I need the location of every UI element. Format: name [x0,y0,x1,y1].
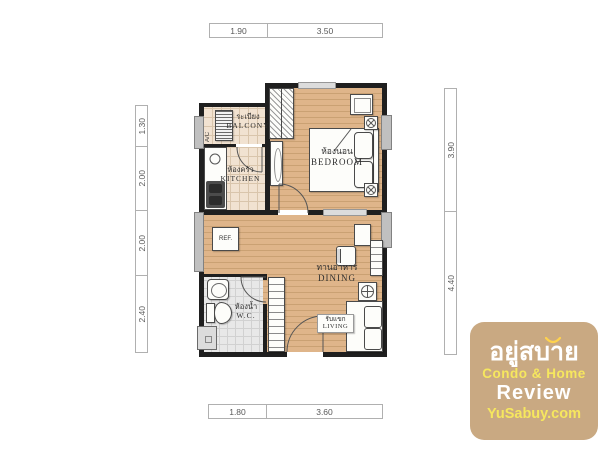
bedroom-console [270,141,283,186]
dim-right-1: 3.90 [444,88,457,212]
dim-top-2: 3.50 [267,23,383,38]
balcony-label: ระเบียง BALCONY [226,113,270,130]
nightstand [350,94,373,115]
window-left-dining [194,212,204,272]
yusabuy-logo-thai: อยู่สบาย [489,340,578,365]
smiley-icon [545,336,561,345]
wc-label: ห้องน้ำ W.C. [224,303,268,320]
bedroom-wardrobe [269,88,294,139]
refrigerator-label: REF. [219,236,232,242]
ac-label: A/C [205,114,211,142]
wall-balcony-top [199,103,269,107]
yusabuy-watermark: อยู่สบาย Condo & Home Review YuSabuy.com [470,322,598,440]
dim-bottom-1: 1.80 [208,404,267,419]
wall-bottom-left [199,352,287,357]
bedside-lamp-top [364,116,378,130]
dim-left-3: 2.00 [135,210,148,276]
watermark-line3: YuSabuy.com [487,406,581,422]
dim-left-2: 2.00 [135,146,148,211]
kitchen-label: ห้องครัว KITCHEN [216,166,265,183]
dim-left-4: 2.40 [135,275,148,353]
wall-middle-center [308,210,323,215]
hall-closet [268,277,285,352]
wall-bottom-right [323,352,387,357]
sofa-cushion-top [364,306,382,328]
sink-basin-top [209,184,222,193]
dim-top-1: 1.90 [209,23,268,38]
wc-basin [207,279,229,300]
watermark-line1: Condo & Home [482,366,586,381]
wall-shelf [370,240,383,276]
wall-balcony-kitchen-stub [262,144,270,147]
window-bedroom-top [298,82,336,89]
sofa-cushion-bottom [364,328,382,350]
window-left-balcony [194,116,204,149]
dim-bottom-2: 3.60 [266,404,383,419]
chair-back [337,249,341,263]
shower-area [197,326,217,350]
side-table [358,282,377,301]
shower-drain [205,336,212,343]
living-label: รับแขก LIVING [317,314,354,333]
window-bedroom-dining [323,209,367,216]
window-right-bedroom [381,115,392,150]
floorplan-canvas: A/C REF. [0,0,600,450]
dining-desk [354,224,371,246]
bedside-lamp-bottom [364,183,378,197]
kitchen-sink [206,181,225,208]
wall-middle-left [199,210,278,215]
dim-right-2: 4.40 [444,211,457,355]
sink-basin-bottom [209,196,222,205]
watermark-line2: Review [497,382,572,405]
bedroom-label: ห้องนอน BEDROOM [303,147,371,167]
bed-headboard-line [373,129,374,191]
console-detail [274,148,282,182]
wardrobe-divider [281,89,282,138]
wall-wc-top [199,274,267,277]
wall-wc-right-upper [263,274,267,280]
nightstand-detail [354,98,371,113]
basin-bowl [211,283,227,298]
dining-label: ทานอาหาร DINING [303,263,371,283]
dim-left-1: 1.30 [135,105,148,147]
